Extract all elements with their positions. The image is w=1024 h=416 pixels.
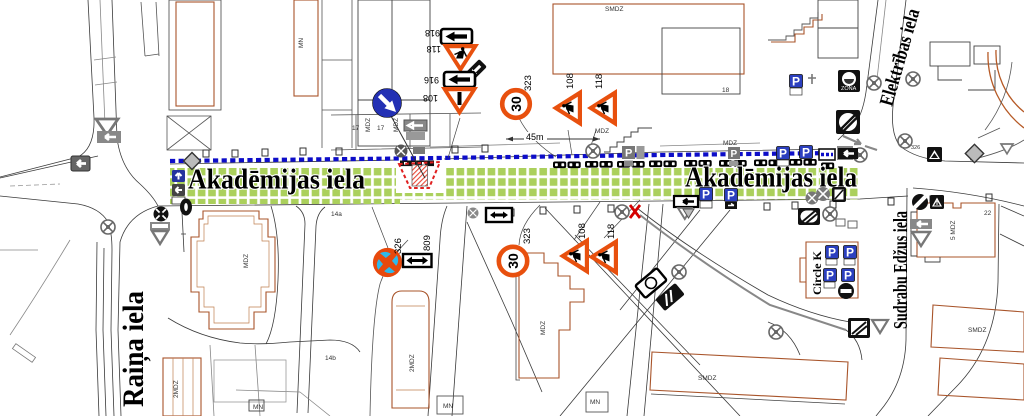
svg-text:14a: 14a bbox=[331, 211, 342, 218]
svg-text:30: 30 bbox=[508, 96, 524, 112]
svg-text:2MDZ: 2MDZ bbox=[409, 354, 416, 372]
svg-text:Raiņa iela: Raiņa iela bbox=[118, 291, 151, 407]
svg-text:MN: MN bbox=[590, 399, 600, 406]
svg-text:MDZ: MDZ bbox=[393, 118, 400, 132]
svg-text:30: 30 bbox=[505, 253, 521, 269]
svg-text:P: P bbox=[625, 148, 632, 160]
svg-text:108: 108 bbox=[577, 223, 588, 239]
svg-text:SMDZ: SMDZ bbox=[968, 327, 986, 334]
svg-text:ZONA: ZONA bbox=[841, 86, 857, 92]
svg-text:108: 108 bbox=[565, 73, 576, 89]
svg-text:45m: 45m bbox=[526, 132, 544, 142]
svg-text:108: 108 bbox=[423, 93, 438, 103]
svg-text:2MDZ: 2MDZ bbox=[173, 380, 180, 398]
svg-text:118: 118 bbox=[594, 74, 605, 89]
svg-text:MN: MN bbox=[298, 38, 305, 48]
svg-text:Circle K: Circle K bbox=[810, 250, 824, 295]
svg-text:MDZ: MDZ bbox=[365, 118, 372, 132]
svg-text:118: 118 bbox=[427, 44, 441, 54]
svg-text:SMDZ: SMDZ bbox=[605, 6, 623, 13]
svg-text:Akadēmijas iela: Akadēmijas iela bbox=[188, 165, 365, 196]
svg-text:18: 18 bbox=[722, 87, 730, 94]
svg-text:22: 22 bbox=[984, 210, 992, 217]
svg-text:17: 17 bbox=[377, 125, 385, 132]
svg-text:809: 809 bbox=[422, 235, 433, 251]
svg-text:MN: MN bbox=[443, 403, 453, 410]
svg-text:MN: MN bbox=[253, 404, 263, 411]
svg-text:916: 916 bbox=[424, 75, 439, 85]
svg-text:118: 118 bbox=[606, 224, 617, 239]
svg-text:Sudrabu Edžus iela: Sudrabu Edžus iela bbox=[890, 211, 912, 329]
svg-text:17: 17 bbox=[352, 125, 360, 132]
svg-text:326: 326 bbox=[393, 238, 404, 254]
svg-text:5 MDZ: 5 MDZ bbox=[950, 220, 957, 240]
svg-text:323: 323 bbox=[523, 75, 534, 91]
svg-text:14b: 14b bbox=[325, 355, 336, 362]
svg-text:918: 918 bbox=[425, 28, 440, 38]
svg-text:326: 326 bbox=[911, 145, 920, 151]
svg-text:323: 323 bbox=[522, 228, 533, 244]
svg-text:SMDZ: SMDZ bbox=[698, 375, 716, 382]
svg-text:MDZ: MDZ bbox=[595, 128, 609, 135]
svg-text:MDZ: MDZ bbox=[540, 321, 547, 335]
svg-text:MDZ: MDZ bbox=[243, 254, 250, 268]
svg-text:MDZ: MDZ bbox=[723, 140, 737, 147]
svg-text:P: P bbox=[731, 149, 738, 160]
